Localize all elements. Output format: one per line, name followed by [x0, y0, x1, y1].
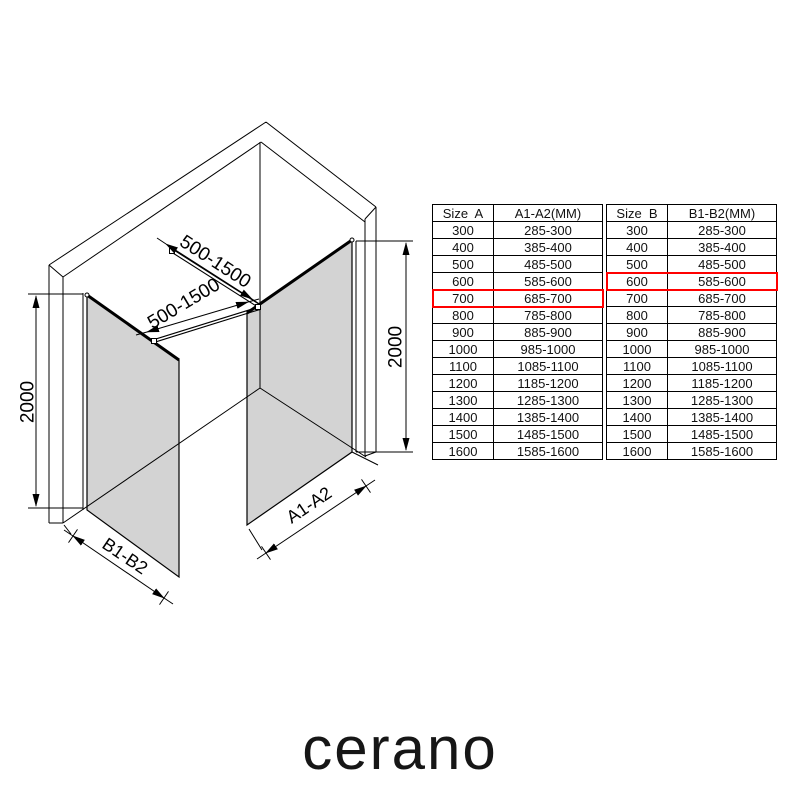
- table-cell: 1285-1300: [494, 392, 603, 409]
- table-cell: 1200: [607, 375, 668, 392]
- table-cell: 1200: [433, 375, 494, 392]
- table-row: 900885-900: [433, 324, 603, 341]
- table-cell: 485-500: [668, 256, 777, 273]
- table-row: 600585-600: [433, 273, 603, 290]
- table-row: 1000985-1000: [433, 341, 603, 358]
- column-header: Size B: [607, 205, 668, 222]
- table-cell: 1085-1100: [668, 358, 777, 375]
- table-cell: 1185-1200: [668, 375, 777, 392]
- table-cell: 585-600: [668, 273, 777, 290]
- table-cell: 600: [433, 273, 494, 290]
- table-cell: 1500: [607, 426, 668, 443]
- column-header: B1-B2(MM): [668, 205, 777, 222]
- table-row: 12001185-1200: [433, 375, 603, 392]
- table-cell: 500: [433, 256, 494, 273]
- table-cell: 1485-1500: [494, 426, 603, 443]
- table-row: 300285-300: [607, 222, 777, 239]
- table-row: 11001085-1100: [607, 358, 777, 375]
- dim-label-height-left: 2000: [18, 381, 39, 423]
- table-cell: 1300: [607, 392, 668, 409]
- table-cell: 800: [433, 307, 494, 324]
- table-cell: 385-400: [668, 239, 777, 256]
- table-cell: 900: [433, 324, 494, 341]
- size-table-a-container: Size AA1-A2(MM)300285-300400385-40050048…: [432, 204, 603, 460]
- table-row: 800785-800: [433, 307, 603, 324]
- table-row: 600585-600: [607, 273, 777, 290]
- table-row: 13001285-1300: [607, 392, 777, 409]
- brand-logo: cerano: [0, 714, 800, 783]
- table-cell: 1585-1600: [494, 443, 603, 460]
- table-cell: 1185-1200: [494, 375, 603, 392]
- table-cell: 1385-1400: [494, 409, 603, 426]
- table-cell: 1600: [607, 443, 668, 460]
- table-cell: 1585-1600: [668, 443, 777, 460]
- table-header-row: Size BB1-B2(MM): [607, 205, 777, 222]
- table-cell: 1500: [433, 426, 494, 443]
- table-cell: 885-900: [668, 324, 777, 341]
- table-cell: 1600: [433, 443, 494, 460]
- table-cell: 585-600: [494, 273, 603, 290]
- connector-node: [256, 305, 261, 310]
- table-cell: 985-1000: [494, 341, 603, 358]
- table-cell: 1000: [433, 341, 494, 358]
- table-row: 13001285-1300: [433, 392, 603, 409]
- table-cell: 700: [433, 290, 494, 307]
- table-cell: 700: [607, 290, 668, 307]
- table-header-row: Size AA1-A2(MM): [433, 205, 603, 222]
- panel-corner-node: [85, 293, 89, 297]
- table-cell: 385-400: [494, 239, 603, 256]
- table-row: 11001085-1100: [433, 358, 603, 375]
- table-row: 700685-700: [607, 290, 777, 307]
- table-cell: 885-900: [494, 324, 603, 341]
- table-row: 900885-900: [607, 324, 777, 341]
- table-cell: 785-800: [494, 307, 603, 324]
- table-row: 800785-800: [607, 307, 777, 324]
- table-cell: 785-800: [668, 307, 777, 324]
- table-cell: 900: [607, 324, 668, 341]
- table-row: 700685-700: [433, 290, 603, 307]
- table-cell: 1100: [433, 358, 494, 375]
- table-cell: 685-700: [668, 290, 777, 307]
- column-header: Size A: [433, 205, 494, 222]
- table-cell: 1285-1300: [668, 392, 777, 409]
- table-cell: 285-300: [494, 222, 603, 239]
- table-cell: 1400: [433, 409, 494, 426]
- table-row: 15001485-1500: [607, 426, 777, 443]
- table-cell: 800: [607, 307, 668, 324]
- size-table-b-container: Size BB1-B2(MM)300285-300400385-40050048…: [606, 204, 777, 460]
- table-cell: 1000: [607, 341, 668, 358]
- table-cell: 300: [607, 222, 668, 239]
- connector-node: [152, 339, 157, 344]
- table-cell: 685-700: [494, 290, 603, 307]
- table-row: 500485-500: [433, 256, 603, 273]
- size-a-table: Size AA1-A2(MM)300285-300400385-40050048…: [432, 204, 603, 460]
- table-row: 16001585-1600: [607, 443, 777, 460]
- panel-corner-node: [350, 238, 354, 242]
- page: 500-1500 500-1500 2000 2000 B1-B2 A1-A2 …: [0, 0, 800, 800]
- table-cell: 1385-1400: [668, 409, 777, 426]
- size-b-table: Size BB1-B2(MM)300285-300400385-40050048…: [606, 204, 777, 460]
- table-cell: 985-1000: [668, 341, 777, 358]
- table-cell: 1400: [607, 409, 668, 426]
- glass-panel-right: [247, 240, 352, 525]
- table-cell: 300: [433, 222, 494, 239]
- table-row: 1000985-1000: [607, 341, 777, 358]
- table-cell: 1300: [433, 392, 494, 409]
- table-row: 500485-500: [607, 256, 777, 273]
- table-cell: 285-300: [668, 222, 777, 239]
- table-row: 14001385-1400: [433, 409, 603, 426]
- table-cell: 400: [607, 239, 668, 256]
- table-row: 300285-300: [433, 222, 603, 239]
- table-row: 15001485-1500: [433, 426, 603, 443]
- table-cell: 600: [607, 273, 668, 290]
- glass-panel-left: [87, 295, 179, 577]
- column-header: A1-A2(MM): [494, 205, 603, 222]
- table-row: 12001185-1200: [607, 375, 777, 392]
- dim-label-height-right: 2000: [386, 326, 407, 368]
- table-cell: 1100: [607, 358, 668, 375]
- table-cell: 500: [607, 256, 668, 273]
- table-row: 14001385-1400: [607, 409, 777, 426]
- table-row: 16001585-1600: [433, 443, 603, 460]
- table-cell: 485-500: [494, 256, 603, 273]
- table-cell: 1485-1500: [668, 426, 777, 443]
- table-row: 400385-400: [433, 239, 603, 256]
- table-cell: 1085-1100: [494, 358, 603, 375]
- table-row: 400385-400: [607, 239, 777, 256]
- table-cell: 400: [433, 239, 494, 256]
